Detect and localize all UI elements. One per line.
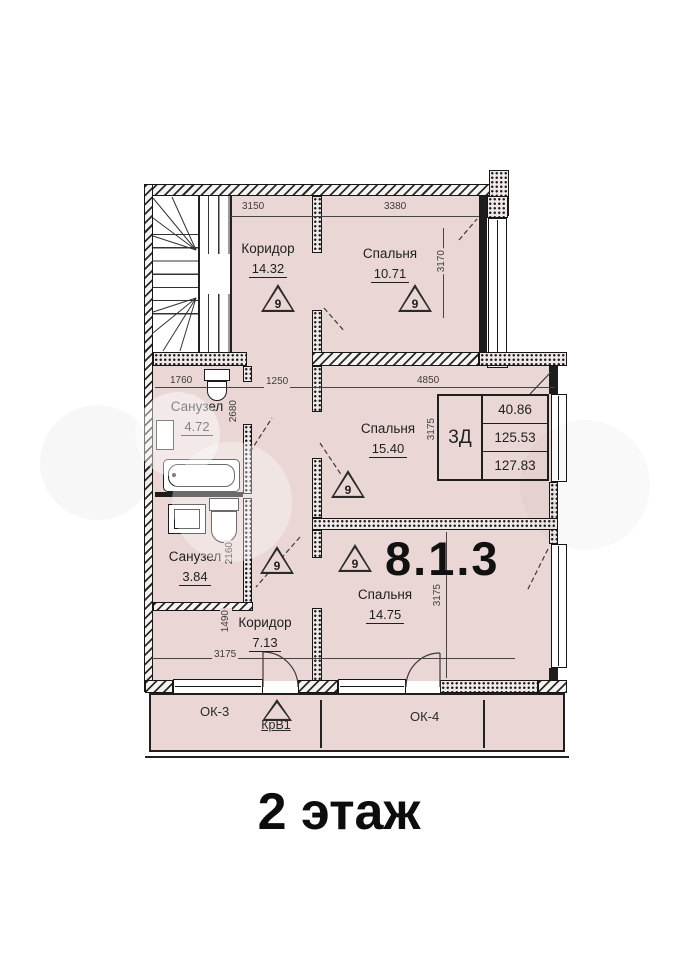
wall-mid-center xyxy=(312,352,479,366)
wall-corridor-bed3-b xyxy=(312,608,322,681)
room-area: 3.84 xyxy=(179,568,210,586)
wall-bottom-2 xyxy=(298,680,338,693)
window-bedroom2 xyxy=(551,394,567,482)
dim-1760: 1760 xyxy=(168,375,194,387)
room-area: 14.75 xyxy=(366,606,405,624)
area-value-1: 40.86 xyxy=(483,396,547,424)
wall-corridor-bedroom-a xyxy=(312,196,322,253)
wall-corridor-bed3-a xyxy=(312,530,322,558)
room-label-bath2: Санузел 3.84 xyxy=(150,548,240,586)
wall-bottom-1 xyxy=(145,680,173,693)
wall-bath1-b xyxy=(243,424,252,494)
balcony-divider-2 xyxy=(483,700,485,748)
wall-corridor-bed2-b xyxy=(312,458,322,518)
balcony xyxy=(149,693,565,752)
room-name: Спальня xyxy=(343,420,433,437)
dim-3150: 3150 xyxy=(240,201,266,213)
area-value-2: 125.53 xyxy=(483,424,547,452)
wall-bottom-3 xyxy=(440,680,538,693)
room-name: Коридор xyxy=(225,614,305,631)
balcony-bottom-line xyxy=(145,756,569,758)
sink2-inner xyxy=(174,509,200,529)
room-name: Спальня xyxy=(340,586,430,603)
room-label-bath1: Санузел 4.72 xyxy=(152,398,242,436)
room-area: 15.40 xyxy=(369,440,408,458)
vent-mark-label: КрВ1 xyxy=(252,718,300,732)
toilet2-bowl xyxy=(211,511,237,543)
dim-3380: 3380 xyxy=(382,201,408,213)
window-bottom-mid xyxy=(338,679,406,694)
dim-line-mid xyxy=(155,387,555,388)
toilet1-tank xyxy=(204,369,230,381)
apartment-info-table: 3Д 40.86 125.53 127.83 xyxy=(437,394,549,481)
room-fill-corridor-bridge xyxy=(247,352,312,366)
dim-4850: 4850 xyxy=(415,375,441,387)
apartment-type: 3Д xyxy=(439,396,483,479)
stair-treads-lower xyxy=(199,294,231,352)
room-label-corridor2: Коридор 7.13 xyxy=(225,614,305,652)
floor-title: 2 этаж xyxy=(0,782,678,842)
dim-3170: 3170 xyxy=(436,248,448,274)
wall-corridor-bed2-a xyxy=(312,366,322,412)
apartment-areas: 40.86 125.53 127.83 xyxy=(483,396,547,479)
stair-divider xyxy=(198,196,200,352)
wall-top xyxy=(145,184,491,196)
room-label-bedroom1: Спальня 10.71 xyxy=(345,245,435,283)
window-bedroom1 xyxy=(488,218,507,358)
room-name: Коридор xyxy=(223,240,313,257)
wall-bath2-bottom xyxy=(153,602,253,611)
room-label-corridor1: Коридор 14.32 xyxy=(223,240,313,278)
watermark-circle-1 xyxy=(40,405,155,520)
room-label-bedroom2: Спальня 15.40 xyxy=(343,420,433,458)
room-name: Санузел xyxy=(150,548,240,565)
bathtub-drain xyxy=(172,473,176,477)
wall-right-pier xyxy=(549,482,558,544)
room-name: Санузел xyxy=(152,398,242,415)
dim-line-top xyxy=(231,216,479,217)
window-label-ok3: ОК-3 xyxy=(200,704,229,719)
wall-right-top-block xyxy=(479,196,487,354)
room-area: 14.32 xyxy=(249,260,288,278)
room-label-bedroom3: Спальня 14.75 xyxy=(340,586,430,624)
wall-left xyxy=(144,184,153,692)
area-value-3: 127.83 xyxy=(483,452,547,479)
window-ok3 xyxy=(173,679,263,694)
room-area: 4.72 xyxy=(181,418,212,436)
room-name: Спальня xyxy=(345,245,435,262)
bathtub-inner xyxy=(168,464,235,487)
dim-line-bottom xyxy=(150,658,515,659)
wall-corridor-bedroom-b xyxy=(312,310,322,354)
wall-mid-left xyxy=(153,352,247,366)
wall-pier-top xyxy=(487,196,508,218)
wall-bath-divider xyxy=(155,492,243,497)
wall-bath2 xyxy=(243,498,252,606)
room-area: 7.13 xyxy=(249,634,280,652)
window-bedroom3 xyxy=(551,544,567,668)
apartment-number: 8.1.3 xyxy=(385,531,500,586)
wall-bottom-4 xyxy=(538,680,567,693)
balcony-divider-1 xyxy=(320,700,322,748)
window-label-ok4: ОК-4 xyxy=(410,709,439,724)
wall-mid-right xyxy=(479,352,567,366)
stair-treads xyxy=(153,222,199,326)
dim-1250: 1250 xyxy=(264,376,290,388)
toilet2-tank xyxy=(209,498,239,511)
room-area: 10.71 xyxy=(371,265,410,283)
wall-right-upper xyxy=(549,366,558,394)
wall-bath1-a xyxy=(243,366,252,382)
wall-bed2-bed3 xyxy=(312,518,558,530)
floorplan-canvas: 3150 3380 3170 1760 1250 4850 2680 3175 … xyxy=(0,0,678,960)
